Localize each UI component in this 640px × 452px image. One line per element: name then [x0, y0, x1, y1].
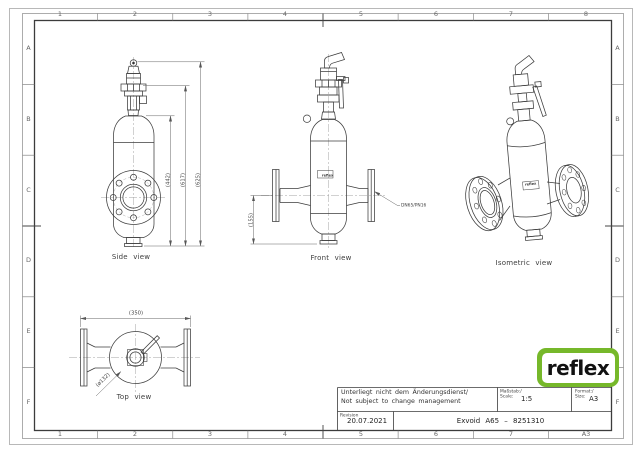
- grid-row-label: B: [611, 116, 624, 123]
- grid-col-label: 5: [351, 11, 371, 18]
- grid-row-label: D: [611, 257, 624, 264]
- top-view-drawing: [69, 316, 200, 397]
- reflex-logo-inner: reflex: [542, 353, 615, 383]
- grid-col-label: 4: [275, 11, 295, 18]
- front-view-caption: Front view: [296, 255, 366, 262]
- side-dimensions: [138, 62, 205, 246]
- drawing-title: Exvoid A65 – 8251310: [394, 418, 608, 425]
- grid-col-label: 4: [275, 431, 295, 438]
- grid-col-label: 1: [50, 431, 70, 438]
- grid-col-label: 8: [576, 11, 596, 18]
- dim-label-625: (625): [195, 170, 200, 190]
- front-view-drawing: [251, 53, 401, 251]
- grid-col-label: 5: [351, 431, 371, 438]
- dim-label-350: (350): [122, 310, 148, 315]
- format-label-en: Size:: [575, 394, 586, 398]
- revision-value: 20.07.2021: [347, 418, 387, 425]
- reflex-logo-text: reflex: [547, 356, 609, 380]
- dim-label-617: (617): [180, 170, 185, 190]
- grid-row-label: F: [22, 399, 35, 406]
- grid-row-label: E: [611, 328, 624, 335]
- reflex-logo: reflex: [537, 348, 619, 387]
- side-view-drawing: [101, 57, 205, 249]
- side-view-caption: Side view: [96, 254, 166, 261]
- grid-row-label: D: [22, 257, 35, 264]
- title-block-note-en: Not subject to change management: [341, 399, 461, 405]
- grid-col-label: 3: [200, 11, 220, 18]
- front-body-logo-label: reflex: [321, 173, 329, 177]
- grid-row-label: C: [611, 187, 624, 194]
- iso-right-flange-bolt-holes: [557, 165, 590, 216]
- grid-row-label: A: [611, 45, 624, 52]
- grid-col-label: 7: [501, 11, 521, 18]
- scale-label-en: Scale:: [500, 394, 513, 398]
- grid-row-label: B: [22, 116, 35, 123]
- flange-spec-label: DN65/PN16: [401, 203, 426, 207]
- grid-col-label: 2: [125, 11, 145, 18]
- grid-col-label: 3: [200, 431, 220, 438]
- grid-row-label: E: [22, 328, 35, 335]
- dim-label-155: (155): [248, 210, 253, 230]
- format-value: A3: [589, 396, 598, 403]
- top-view-caption: Top view: [99, 394, 169, 401]
- grid-col-label: A3: [576, 431, 596, 438]
- grid-col-label: 2: [125, 431, 145, 438]
- grid-col-label: 7: [501, 431, 521, 438]
- iso-body-logo-label: reflex: [525, 182, 533, 186]
- grid-col-label: 1: [50, 11, 70, 18]
- scale-value: 1:5: [521, 396, 532, 403]
- grid-row-label: F: [611, 399, 624, 406]
- grid-row-label: C: [22, 187, 35, 194]
- grid-row-label: A: [22, 45, 35, 52]
- isometric-view-drawing: [459, 54, 593, 241]
- grid-col-label: 6: [426, 11, 446, 18]
- title-block-note-de: Unterliegt nicht dem Änderungsdienst/: [341, 390, 468, 396]
- isometric-view-caption: Isometric view: [479, 260, 569, 267]
- drawing-sheet: 1 2 3 4 5 6 7 8 1 2 3 4 5 6 7 A3 A B C D…: [0, 0, 640, 452]
- grid-col-label: 6: [426, 431, 446, 438]
- dim-label-442: (442): [165, 170, 170, 190]
